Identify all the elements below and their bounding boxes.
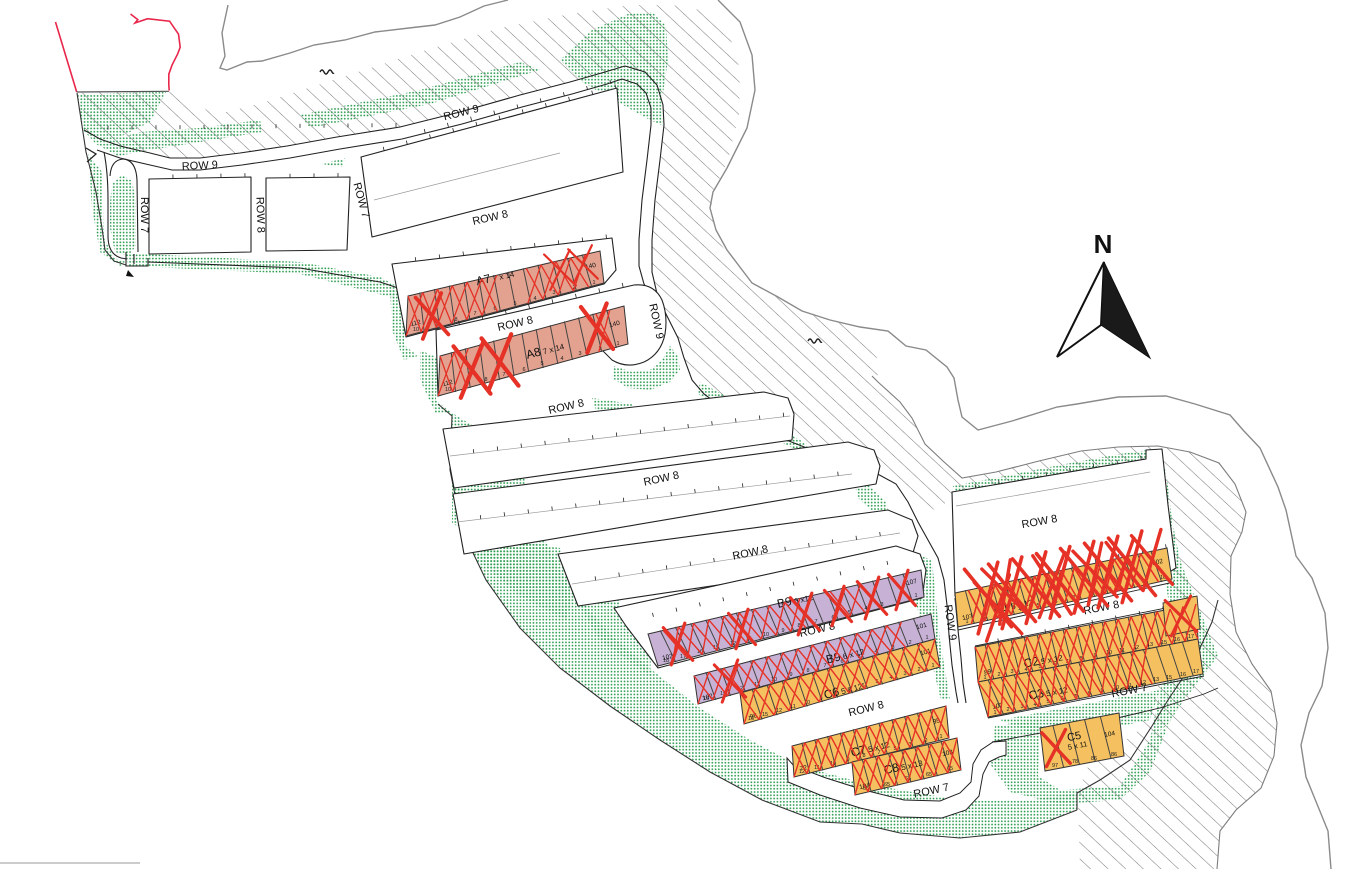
svg-text:6: 6 <box>522 367 525 373</box>
svg-text:8: 8 <box>862 753 865 759</box>
svg-text:8: 8 <box>806 668 809 674</box>
svg-text:9: 9 <box>781 628 784 634</box>
svg-text:2: 2 <box>1006 707 1009 713</box>
svg-text:7: 7 <box>502 372 505 378</box>
svg-text:16: 16 <box>703 696 709 702</box>
svg-text:5: 5 <box>513 301 516 307</box>
svg-text:7: 7 <box>823 663 826 669</box>
svg-text:2: 2 <box>997 672 1000 678</box>
svg-text:ROW 7: ROW 7 <box>138 197 150 233</box>
svg-text:1: 1 <box>993 710 996 716</box>
svg-text:86: 86 <box>1111 752 1117 758</box>
svg-text:17: 17 <box>1193 669 1199 675</box>
svg-text:4: 4 <box>560 356 563 362</box>
svg-text:16: 16 <box>1180 672 1186 678</box>
svg-text:1: 1 <box>925 635 928 641</box>
svg-text:3: 3 <box>1010 669 1013 675</box>
svg-text:97: 97 <box>1052 763 1058 769</box>
svg-text:5: 5 <box>540 361 543 367</box>
svg-text:16: 16 <box>1174 637 1180 643</box>
svg-text:3: 3 <box>552 290 555 296</box>
svg-text:86: 86 <box>1091 756 1097 762</box>
svg-text:15: 15 <box>1166 675 1172 681</box>
svg-text:3: 3 <box>578 351 581 357</box>
svg-text:8: 8 <box>454 317 457 323</box>
svg-text:10: 10 <box>763 632 769 638</box>
svg-text:1: 1 <box>914 593 917 599</box>
svg-text:1: 1 <box>939 734 942 740</box>
svg-text:ROW 9: ROW 9 <box>182 159 219 173</box>
svg-text:10: 10 <box>445 387 451 393</box>
svg-text:1: 1 <box>965 619 968 625</box>
svg-text:65: 65 <box>926 772 932 778</box>
svg-text:65: 65 <box>884 782 890 788</box>
svg-text:N: N <box>1094 229 1113 259</box>
svg-text:78: 78 <box>1072 759 1078 765</box>
svg-text:7: 7 <box>473 311 476 317</box>
svg-text:16: 16 <box>748 716 754 722</box>
svg-text:17: 17 <box>1188 634 1194 640</box>
svg-text:1: 1 <box>592 280 595 286</box>
svg-text:2: 2 <box>917 667 920 673</box>
svg-text:10: 10 <box>413 327 419 333</box>
svg-text:18: 18 <box>663 658 669 664</box>
svg-text:13: 13 <box>1153 677 1159 683</box>
svg-text:8: 8 <box>484 377 487 383</box>
svg-text:2: 2 <box>908 640 911 646</box>
svg-text:4: 4 <box>533 296 536 302</box>
svg-text:1: 1 <box>616 341 619 347</box>
svg-text:1: 1 <box>931 663 934 669</box>
svg-text:ROW 8: ROW 8 <box>253 197 266 233</box>
svg-text:15: 15 <box>762 712 768 718</box>
